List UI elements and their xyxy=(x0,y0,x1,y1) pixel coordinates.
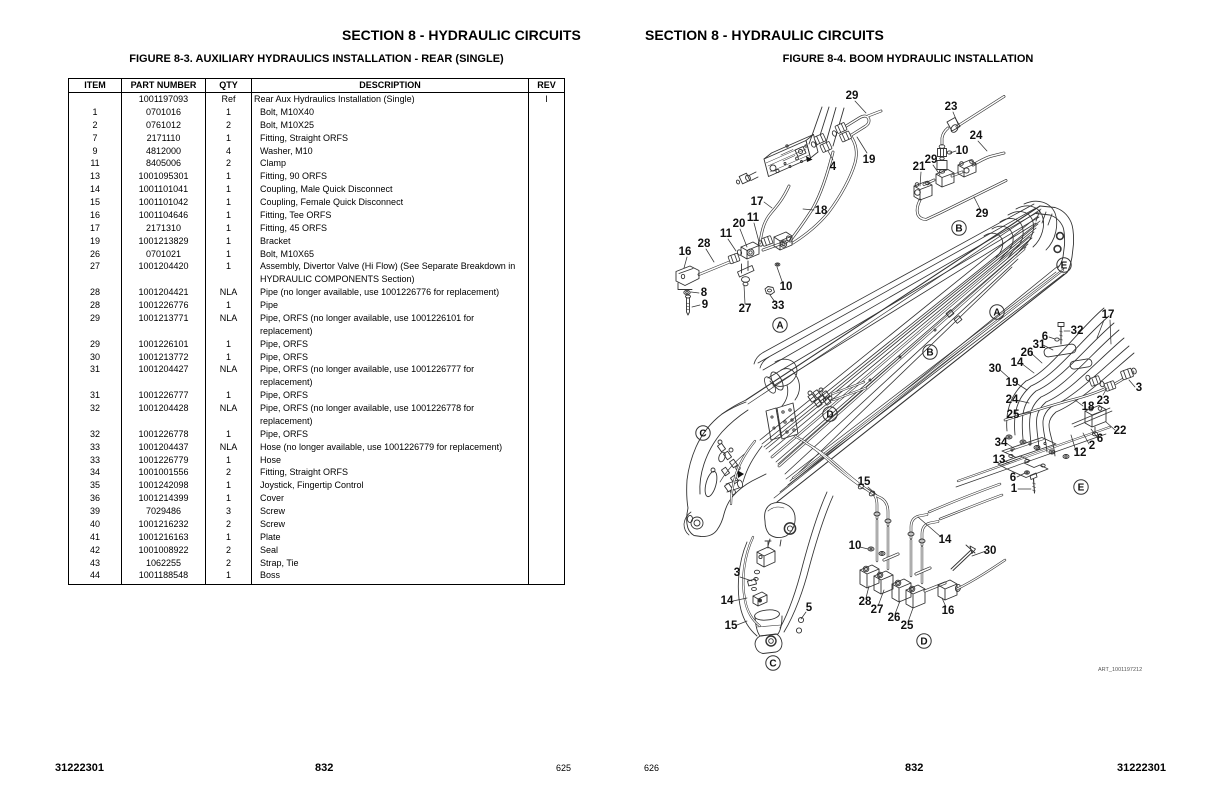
svg-text:25: 25 xyxy=(1007,409,1020,421)
svg-text:20: 20 xyxy=(733,218,746,230)
svg-text:15: 15 xyxy=(858,476,871,488)
svg-text:19: 19 xyxy=(863,154,876,166)
svg-text:14: 14 xyxy=(939,534,952,546)
svg-text:B: B xyxy=(955,224,962,235)
svg-text:19: 19 xyxy=(1006,377,1019,389)
svg-text:1: 1 xyxy=(1011,483,1018,495)
svg-text:10: 10 xyxy=(956,145,969,157)
svg-text:24: 24 xyxy=(970,130,983,142)
svg-text:9: 9 xyxy=(702,299,708,311)
svg-text:18: 18 xyxy=(815,205,828,217)
svg-text:33: 33 xyxy=(772,300,785,312)
svg-text:14: 14 xyxy=(1011,357,1024,369)
svg-text:E: E xyxy=(1061,261,1068,272)
svg-text:A: A xyxy=(776,321,783,332)
svg-text:29: 29 xyxy=(976,208,989,220)
svg-text:18: 18 xyxy=(1082,401,1095,413)
svg-text:5: 5 xyxy=(806,602,813,614)
svg-text:26: 26 xyxy=(888,612,901,624)
svg-text:21: 21 xyxy=(913,161,926,173)
svg-text:34: 34 xyxy=(995,437,1008,449)
svg-text:13: 13 xyxy=(993,454,1006,466)
svg-text:14: 14 xyxy=(721,595,734,607)
svg-text:30: 30 xyxy=(989,363,1002,375)
svg-text:B: B xyxy=(926,348,933,359)
svg-text:D: D xyxy=(920,637,927,648)
svg-text:11: 11 xyxy=(720,228,733,240)
svg-text:10: 10 xyxy=(780,281,793,293)
svg-text:16: 16 xyxy=(942,605,955,617)
svg-text:23: 23 xyxy=(945,101,958,113)
svg-text:4: 4 xyxy=(830,161,837,173)
svg-text:24: 24 xyxy=(1006,394,1019,406)
svg-text:25: 25 xyxy=(901,620,914,632)
svg-text:10: 10 xyxy=(849,540,862,552)
svg-text:6: 6 xyxy=(1097,433,1103,445)
svg-text:31: 31 xyxy=(1033,339,1046,351)
svg-text:ART_1001197212: ART_1001197212 xyxy=(1098,667,1142,673)
svg-text:30: 30 xyxy=(984,545,997,557)
svg-text:11: 11 xyxy=(747,212,760,224)
svg-text:17: 17 xyxy=(1102,309,1115,321)
svg-text:8: 8 xyxy=(701,287,708,299)
svg-text:29: 29 xyxy=(925,154,938,166)
svg-text:28: 28 xyxy=(698,238,711,250)
svg-text:3: 3 xyxy=(734,567,740,579)
svg-text:22: 22 xyxy=(1114,425,1127,437)
svg-text:3: 3 xyxy=(1136,382,1142,394)
svg-text:E: E xyxy=(1078,483,1085,494)
svg-text:A: A xyxy=(993,308,1000,319)
svg-text:C: C xyxy=(769,659,776,670)
svg-text:29: 29 xyxy=(846,90,859,102)
svg-text:32: 32 xyxy=(1071,325,1084,337)
svg-text:D: D xyxy=(826,410,833,421)
svg-text:12: 12 xyxy=(1074,447,1087,459)
svg-text:C: C xyxy=(699,429,706,440)
svg-text:17: 17 xyxy=(751,196,764,208)
svg-text:16: 16 xyxy=(679,246,692,258)
svg-text:27: 27 xyxy=(739,303,752,315)
svg-text:23: 23 xyxy=(1097,395,1110,407)
svg-text:2: 2 xyxy=(1089,440,1095,452)
svg-text:15: 15 xyxy=(725,620,738,632)
svg-text:27: 27 xyxy=(871,604,884,616)
